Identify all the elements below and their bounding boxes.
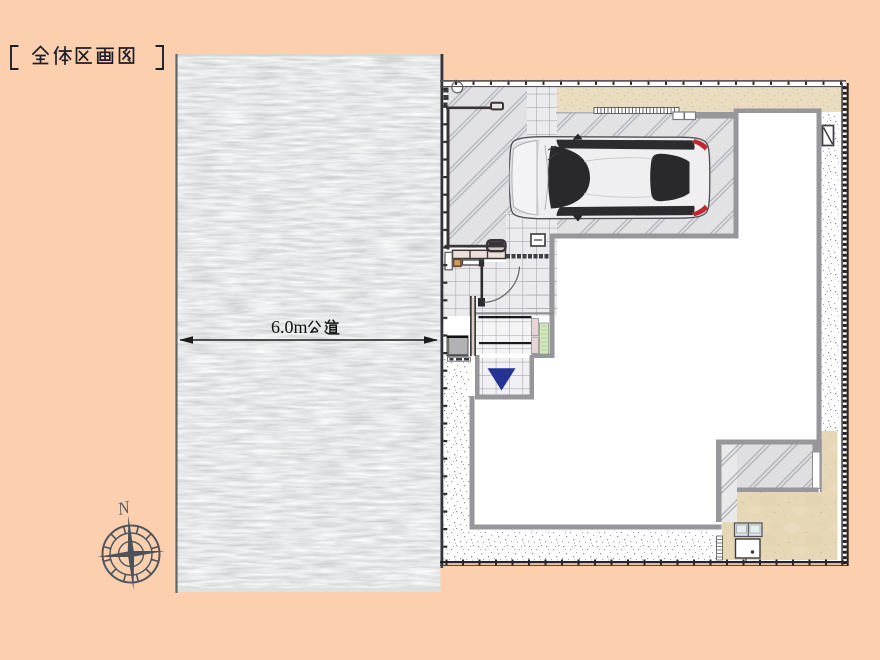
svg-text:6.0m: 6.0m — [271, 317, 308, 337]
